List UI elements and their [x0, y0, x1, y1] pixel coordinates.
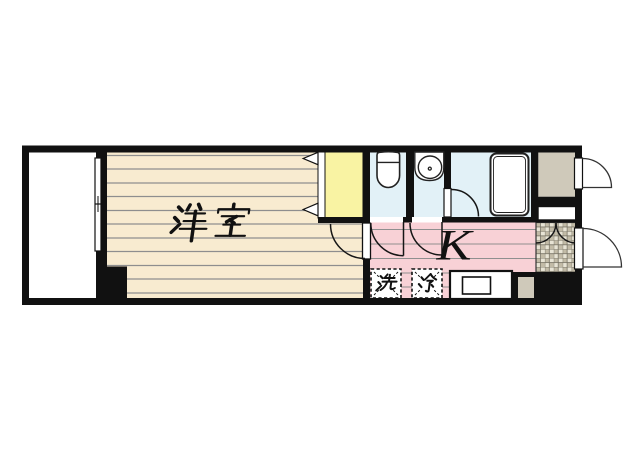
svg-text:K: K: [435, 222, 474, 270]
